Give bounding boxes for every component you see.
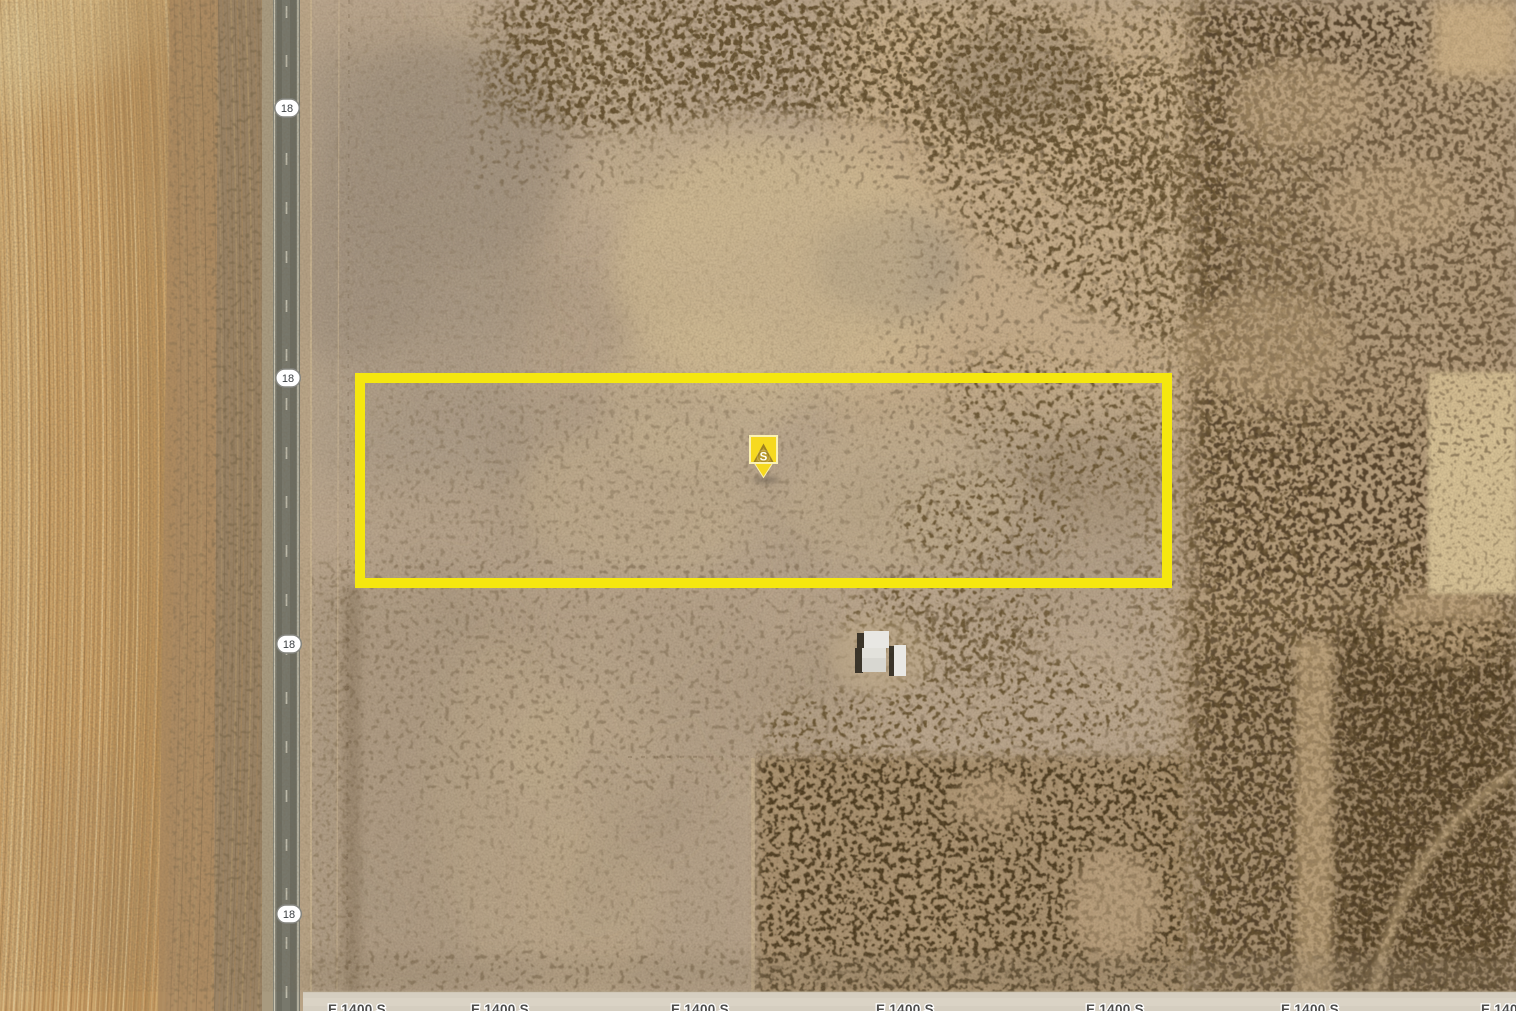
svg-text:S: S xyxy=(760,452,768,464)
svg-text:18: 18 xyxy=(283,639,295,651)
svg-text:E 1400 S: E 1400 S xyxy=(1086,1002,1144,1011)
svg-text:E 1400 S: E 1400 S xyxy=(471,1002,529,1011)
svg-text:E 1400 S: E 1400 S xyxy=(1281,1002,1339,1011)
svg-text:E 1400 S: E 1400 S xyxy=(1481,1002,1516,1011)
svg-text:E 1400 S: E 1400 S xyxy=(328,1002,386,1011)
svg-text:18: 18 xyxy=(282,373,294,385)
svg-text:18: 18 xyxy=(281,103,293,115)
svg-text:E 1400 S: E 1400 S xyxy=(876,1002,934,1011)
svg-text:18: 18 xyxy=(283,909,295,921)
svg-text:E 1400 S: E 1400 S xyxy=(671,1002,729,1011)
